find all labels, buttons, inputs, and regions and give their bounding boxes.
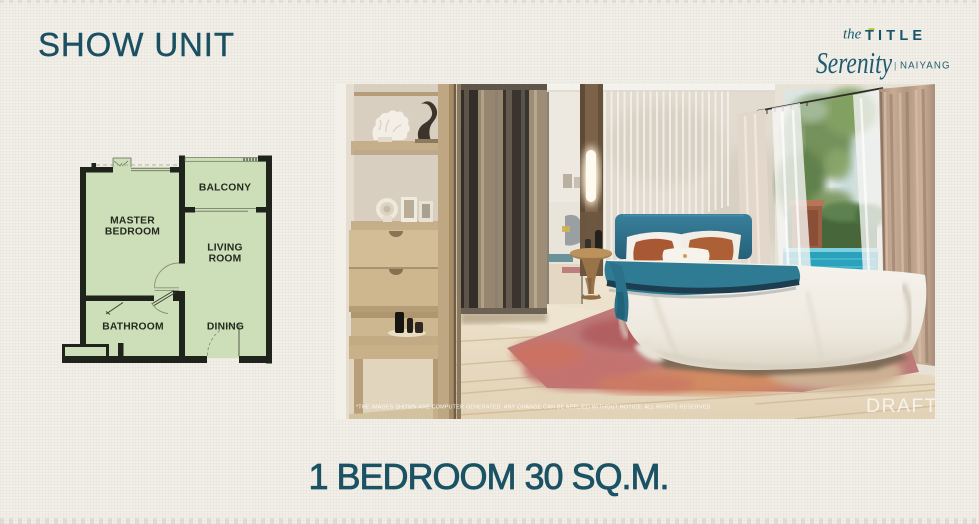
- svg-text:ROOM: ROOM: [209, 254, 242, 265]
- svg-text:Serenity: Serenity: [816, 45, 892, 80]
- svg-text:LIVING: LIVING: [207, 243, 243, 254]
- svg-text:DINING: DINING: [207, 322, 244, 333]
- svg-text:BATHROOM: BATHROOM: [102, 322, 163, 333]
- svg-text:DRAFT: DRAFT: [866, 395, 935, 417]
- svg-text:*THE IMAGES SHOWN ARE COMPUTER: *THE IMAGES SHOWN ARE COMPUTER GENERATED…: [356, 405, 711, 411]
- svg-text:MASTER: MASTER: [110, 216, 155, 227]
- svg-text:BALCONY: BALCONY: [199, 183, 251, 194]
- svg-text:NAIYANG: NAIYANG: [900, 61, 951, 72]
- svg-text:TITLE: TITLE: [865, 28, 926, 44]
- svg-text:BEDROOM: BEDROOM: [105, 227, 160, 238]
- svg-text:the: the: [843, 27, 862, 43]
- svg-text:|: |: [894, 61, 896, 71]
